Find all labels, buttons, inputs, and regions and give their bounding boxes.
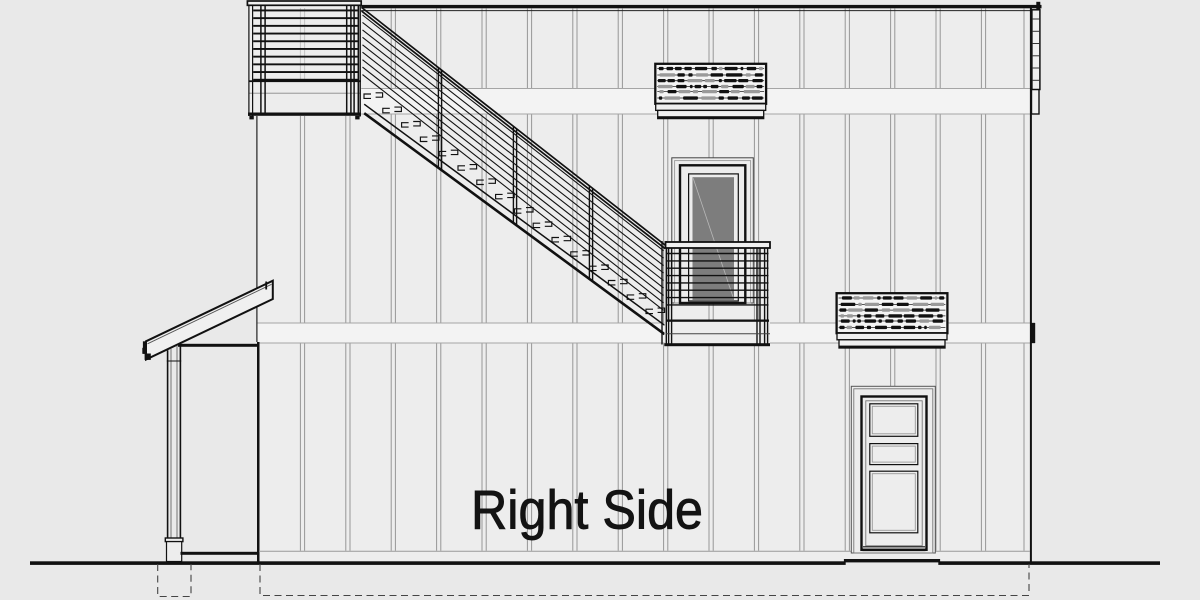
svg-text:Right Side: Right Side (471, 479, 703, 541)
